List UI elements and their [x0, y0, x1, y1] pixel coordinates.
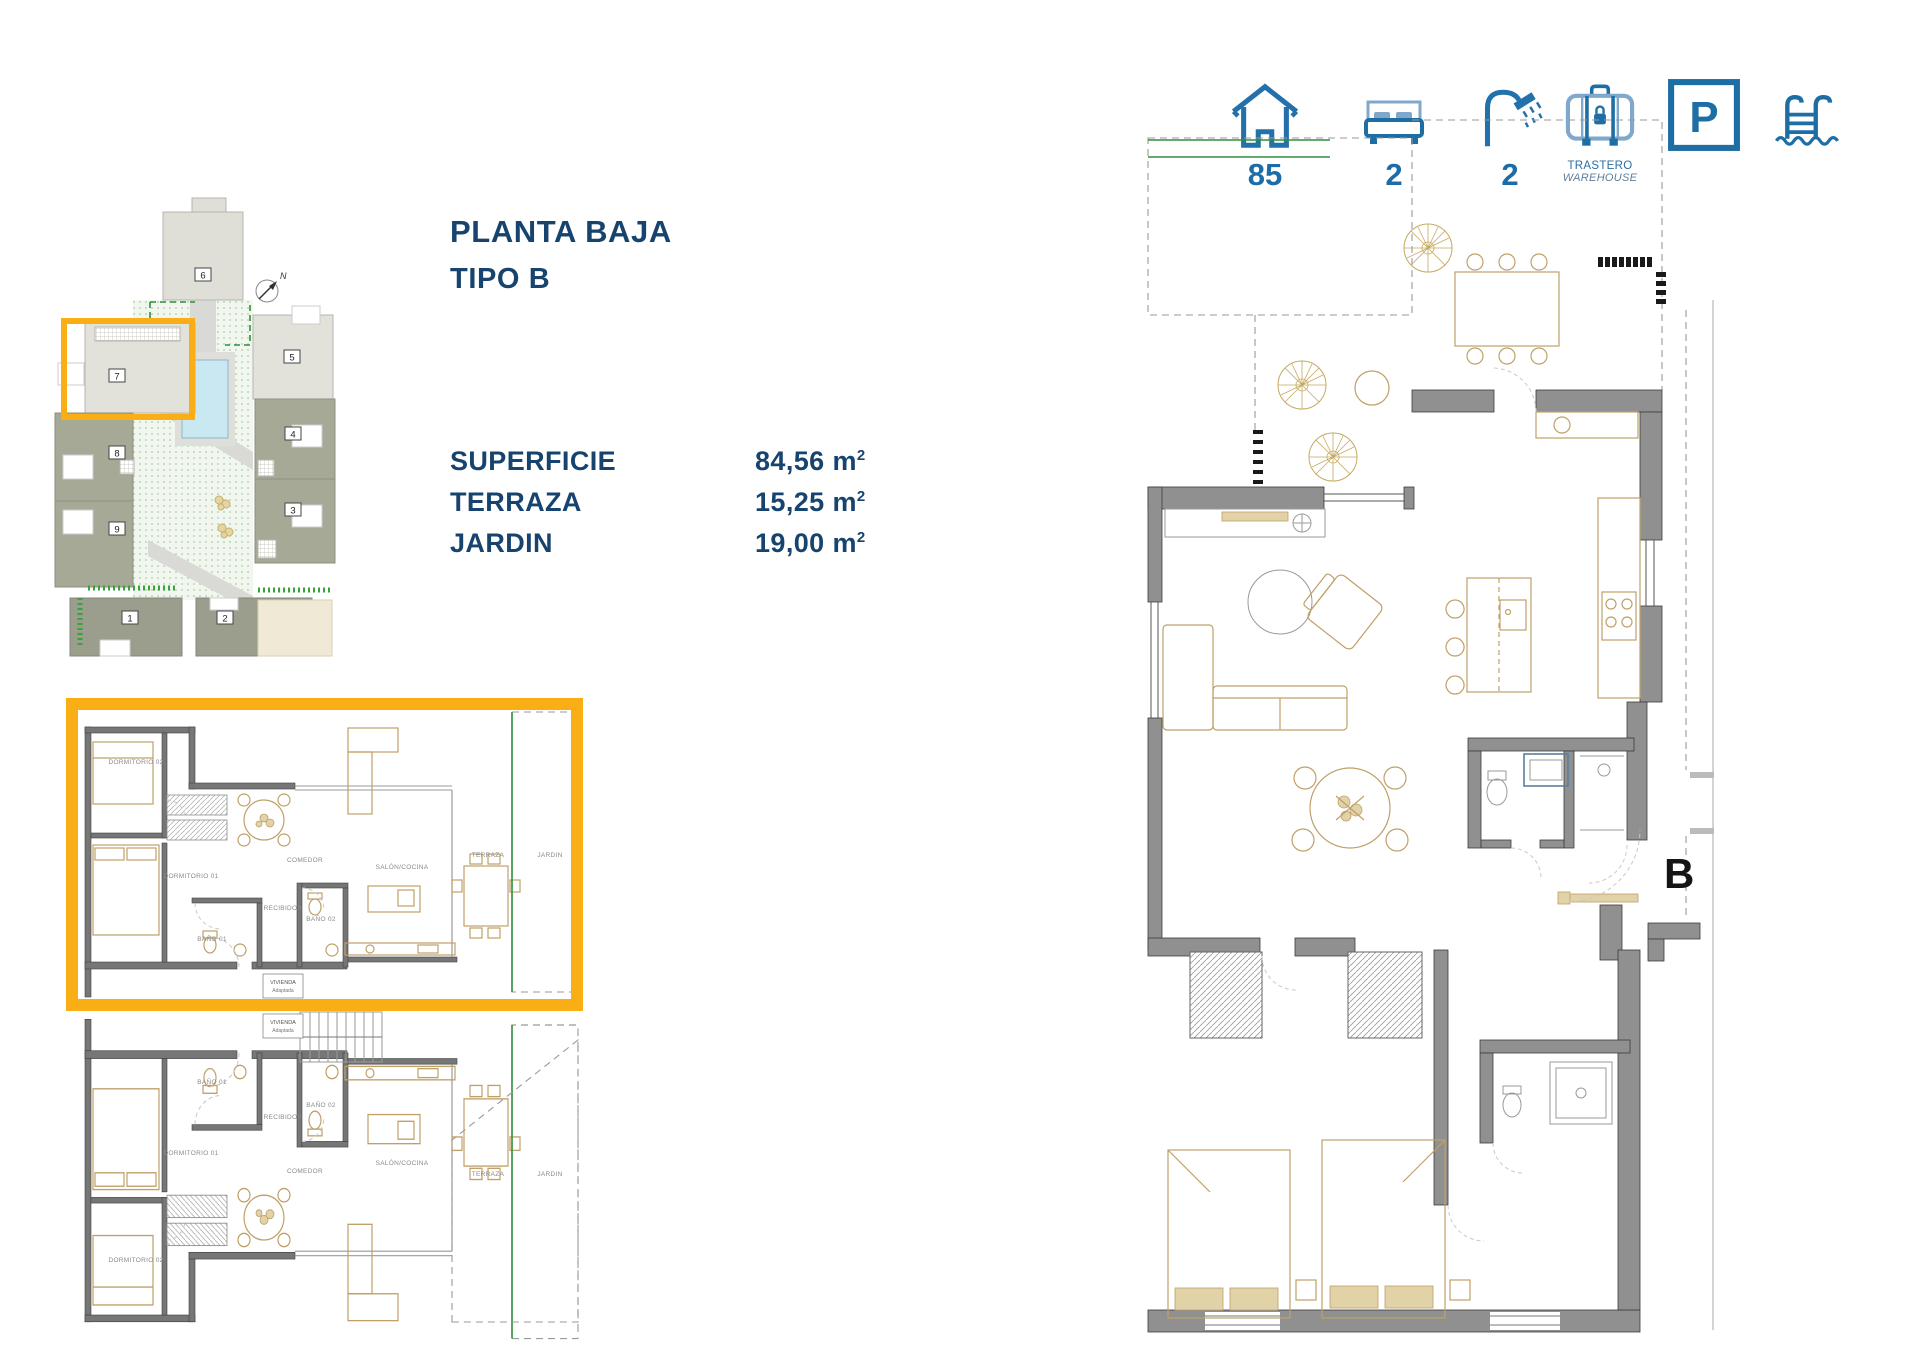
room-label: JARDIN [537, 852, 562, 859]
title-block: PLANTA BAJA TIPO B [450, 214, 672, 296]
spec-row-superficie: SUPERFICIE 84,56 m2 [450, 446, 866, 487]
bathroom-fixtures [1487, 754, 1627, 883]
room-label: COMEDOR [287, 1168, 323, 1175]
vivienda-tag-line1: VIVIENDA [270, 1020, 296, 1026]
page-subtitle: TIPO B [450, 263, 672, 296]
site-patio [258, 600, 332, 656]
spec-label: TERRAZA [450, 487, 755, 518]
spec-row-terraza: TERRAZA 15,25 m2 [450, 487, 866, 528]
room-label: JARDIN [537, 1171, 562, 1178]
upper-room-labels: DORMITORIO 02 DORMITORIO 01 COMEDOR SALÓ… [108, 759, 562, 943]
unit-number: 9 [114, 525, 119, 536]
vivienda-tag-line2: Adaptada [272, 988, 294, 994]
room-label: RECIBIDOR [264, 905, 303, 912]
unit-number: 4 [290, 430, 295, 441]
room-label: BAÑO 02 [306, 914, 336, 923]
lower-garden-wedge [452, 1040, 578, 1322]
spec-value: 19,00 m2 [755, 528, 866, 559]
room-label: DORMITORIO 02 [108, 759, 163, 766]
room-label: COMEDOR [287, 857, 323, 864]
unit-number: 7 [114, 372, 119, 383]
room-label: SALÓN/COCINA [376, 862, 429, 871]
spec-value: 84,56 m2 [755, 446, 866, 477]
detailed-plan: B [1100, 80, 1740, 1350]
entry-door-arc [1492, 368, 1536, 412]
garden-area [1148, 120, 1662, 430]
unit-lower-geometry [85, 1019, 578, 1338]
stat-pool [1747, 66, 1867, 154]
specs-table: SUPERFICIE 84,56 m2 TERRAZA 15,25 m2 JAR… [450, 446, 866, 569]
unit-number: 3 [290, 506, 295, 517]
living-room-furniture [1163, 509, 1384, 730]
plan-letter: B [1664, 850, 1694, 897]
ensuite-bathroom [1493, 1062, 1612, 1173]
spec-value: 15,25 m2 [755, 487, 866, 518]
unit-number: 2 [222, 614, 227, 625]
unit-number: 6 [200, 271, 205, 282]
page-title: PLANTA BAJA [450, 214, 672, 250]
spec-label: SUPERFICIE [450, 446, 755, 477]
vivienda-tag-line1: VIVIENDA [270, 980, 296, 986]
room-label: DORMITORIO 01 [163, 873, 218, 880]
room-label: BAÑO 01 [197, 1077, 227, 1086]
spec-row-jardin: JARDIN 19,00 m2 [450, 528, 866, 569]
site-plan: N 6 5 7 8 4 9 3 1 2 [40, 185, 340, 670]
dining-table [1292, 767, 1408, 851]
kitchen-furniture [1446, 412, 1640, 698]
unit-number: 8 [114, 449, 119, 460]
room-label: BAÑO 02 [306, 1100, 336, 1109]
type-b-unit-plan: DORMITORIO 02 DORMITORIO 01 COMEDOR SALÓ… [40, 688, 600, 1348]
room-label: SALÓN/COCINA [376, 1158, 429, 1167]
compass-icon: N [256, 271, 287, 302]
unit-number: 1 [127, 614, 132, 625]
fence-ticks [1253, 257, 1666, 484]
room-label: BAÑO 01 [197, 934, 227, 943]
room-label: RECIBIDOR [264, 1114, 303, 1121]
pool-icon [1766, 84, 1848, 154]
room-label: TERRAZA [472, 1171, 505, 1178]
room-label: DORMITORIO 02 [108, 1257, 163, 1264]
walls [1148, 390, 1700, 1332]
room-label: DORMITORIO 01 [163, 1150, 218, 1157]
vivienda-tag-line2: Adaptada [272, 1028, 294, 1034]
compass-north-label: N [280, 271, 287, 281]
spec-label: JARDIN [450, 528, 755, 559]
room-label: TERRAZA [472, 852, 505, 859]
building-6 [163, 212, 243, 300]
unit-number: 5 [289, 353, 294, 364]
